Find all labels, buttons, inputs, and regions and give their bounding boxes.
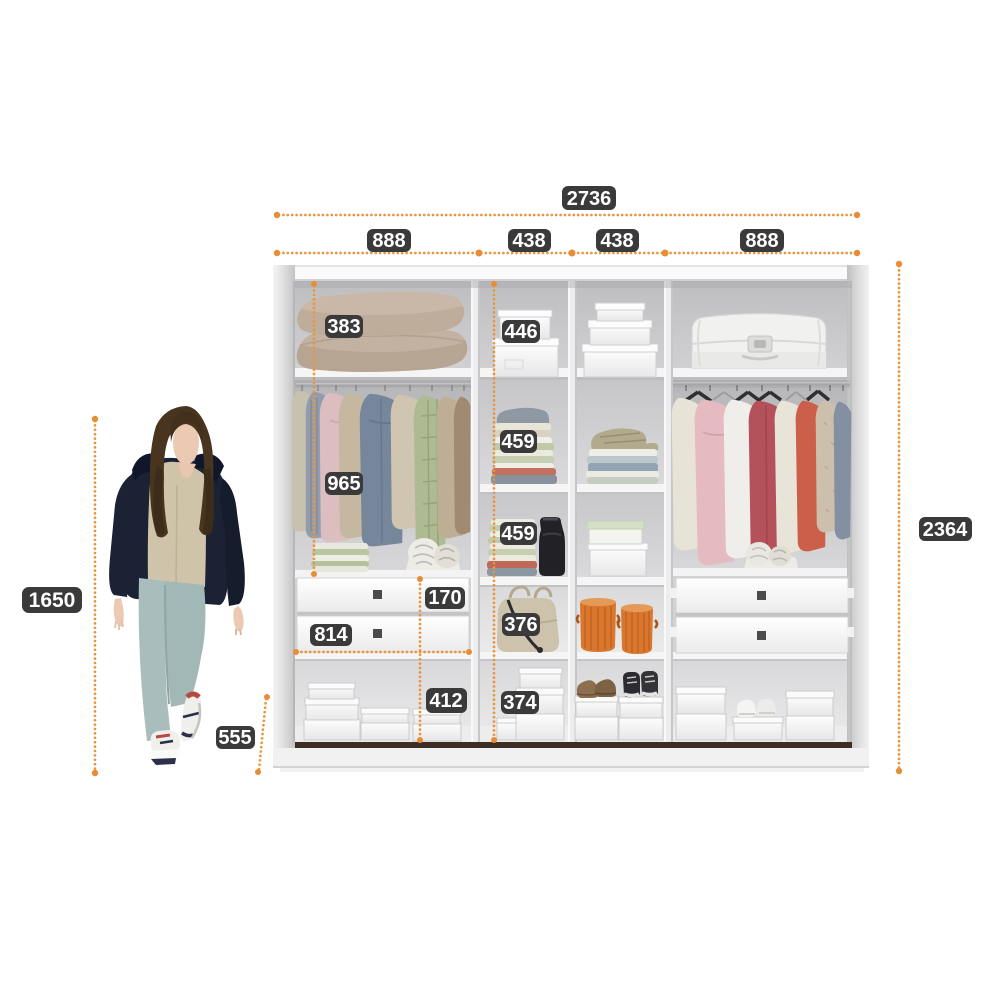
svg-text:888: 888 xyxy=(372,230,405,252)
svg-text:814: 814 xyxy=(314,624,348,646)
svg-text:383: 383 xyxy=(327,316,360,338)
svg-text:438: 438 xyxy=(512,230,545,252)
svg-text:374: 374 xyxy=(503,692,537,714)
svg-text:965: 965 xyxy=(327,473,360,495)
svg-text:888: 888 xyxy=(745,230,778,252)
svg-text:459: 459 xyxy=(501,431,534,453)
svg-text:446: 446 xyxy=(504,321,537,343)
svg-text:459: 459 xyxy=(501,523,534,545)
svg-text:412: 412 xyxy=(429,690,462,712)
svg-text:1650: 1650 xyxy=(29,589,76,612)
svg-text:376: 376 xyxy=(504,614,537,636)
svg-text:2736: 2736 xyxy=(567,188,612,210)
svg-text:170: 170 xyxy=(428,587,461,609)
svg-text:438: 438 xyxy=(600,230,633,252)
svg-text:2364: 2364 xyxy=(923,519,968,541)
svg-text:555: 555 xyxy=(218,727,251,749)
